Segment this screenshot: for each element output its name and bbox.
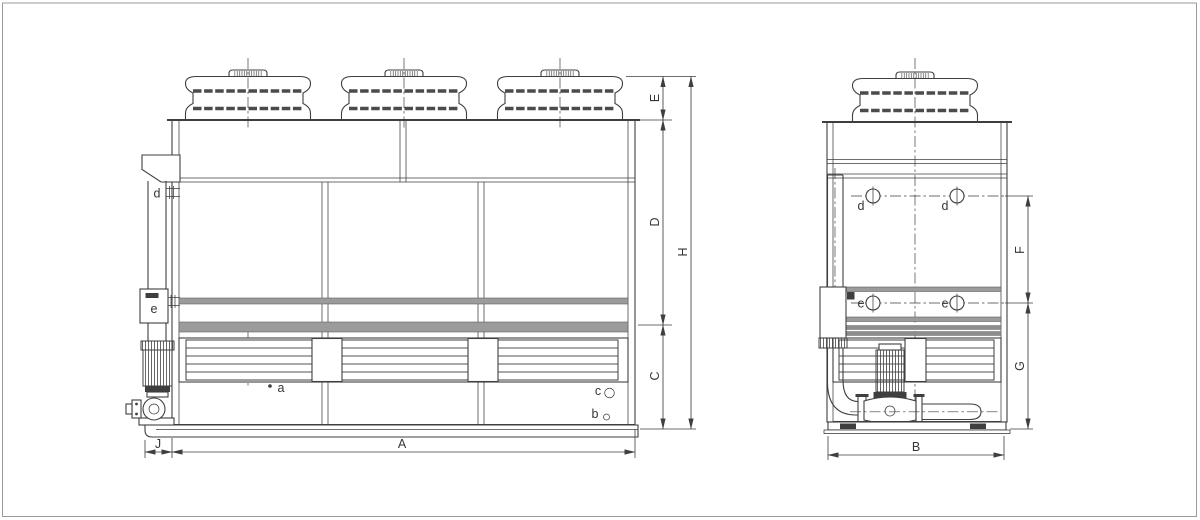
part-label-b: b <box>592 407 599 421</box>
cooling-tower-elevation-drawing: a c b d e E D C H A J <box>0 0 1200 520</box>
marker-dot-a <box>268 384 272 388</box>
front-view: a c b d e E D C H A J <box>126 58 696 458</box>
side-view: d d e e <box>819 58 1033 460</box>
dim-label-G: G <box>1013 361 1027 371</box>
louver-post <box>905 339 926 382</box>
bolt <box>135 403 138 406</box>
base-foot-right <box>970 424 986 430</box>
part-label-d-right: d <box>942 199 949 213</box>
riser-top-bracket <box>142 155 180 182</box>
part-label-e-left: e <box>858 297 865 311</box>
connection-stub-e <box>168 295 180 308</box>
panel-dividers <box>322 182 484 338</box>
base-plate <box>824 430 1010 434</box>
basin-dividers <box>322 382 484 425</box>
marker-circle-c <box>605 388 615 398</box>
part-label-d: d <box>154 187 161 201</box>
band-line-1 <box>833 287 1001 292</box>
gray-strip-2 <box>833 332 1001 336</box>
page-border <box>3 3 1197 517</box>
band-line-2 <box>833 317 1001 322</box>
plenum-lines <box>827 160 1007 179</box>
base-channel <box>145 425 638 437</box>
dim-label-F: F <box>1013 246 1027 254</box>
riser-pipe-lower <box>148 323 166 341</box>
part-label-c: c <box>595 384 601 398</box>
dim-label-H: H <box>676 247 690 256</box>
dim-label-D: D <box>648 217 662 226</box>
wall-fitting <box>847 292 855 300</box>
motor-cap <box>879 344 901 350</box>
flange-cap <box>856 394 869 397</box>
lower-gray-band <box>179 322 628 332</box>
gray-strip-1 <box>833 326 1001 330</box>
plenum-divider <box>400 120 406 182</box>
pump-volute <box>143 398 165 420</box>
inlet-riser-assembly <box>140 155 180 350</box>
marker-circle-b <box>604 414 610 420</box>
flange-cap <box>914 394 925 397</box>
dim-label-E: E <box>648 94 662 102</box>
base-foot-left <box>840 424 856 430</box>
pump-coupling <box>145 386 170 392</box>
louver-panel-right <box>926 340 994 380</box>
dim-label-J: J <box>155 437 161 451</box>
technical-drawing-canvas: a c b d e E D C H A J <box>0 0 1200 520</box>
pipe-flange <box>141 341 174 350</box>
part-label-e-right: e <box>942 297 949 311</box>
pump-casing <box>864 397 916 423</box>
louver-post-2 <box>468 339 498 382</box>
dim-label-C: C <box>648 371 662 380</box>
riser-box <box>820 287 846 338</box>
upper-gray-band <box>179 298 628 304</box>
pump-suction-stub <box>126 404 132 414</box>
part-label-d-left: d <box>858 199 865 213</box>
part-label-e: e <box>151 302 158 316</box>
dim-label-A: A <box>398 437 407 451</box>
connection-stub-d <box>166 186 180 199</box>
dim-label-B: B <box>912 440 920 454</box>
plenum-bottom-line <box>172 178 635 182</box>
louver-panel-1 <box>186 340 312 380</box>
box-plate <box>146 293 159 298</box>
louver-panel-3 <box>498 340 618 380</box>
spray-pump-front <box>126 350 174 425</box>
front-dimensions: E D C H A J <box>145 77 696 459</box>
pipe-flange <box>819 338 847 348</box>
pump-motor <box>143 350 172 386</box>
part-label-a: a <box>278 381 285 395</box>
louver-panel-2 <box>342 340 468 380</box>
bolt <box>135 413 138 416</box>
extension-lines <box>145 77 696 459</box>
louver-post-1 <box>312 339 342 382</box>
pump-neck <box>147 392 168 397</box>
pump-motor <box>876 350 904 392</box>
